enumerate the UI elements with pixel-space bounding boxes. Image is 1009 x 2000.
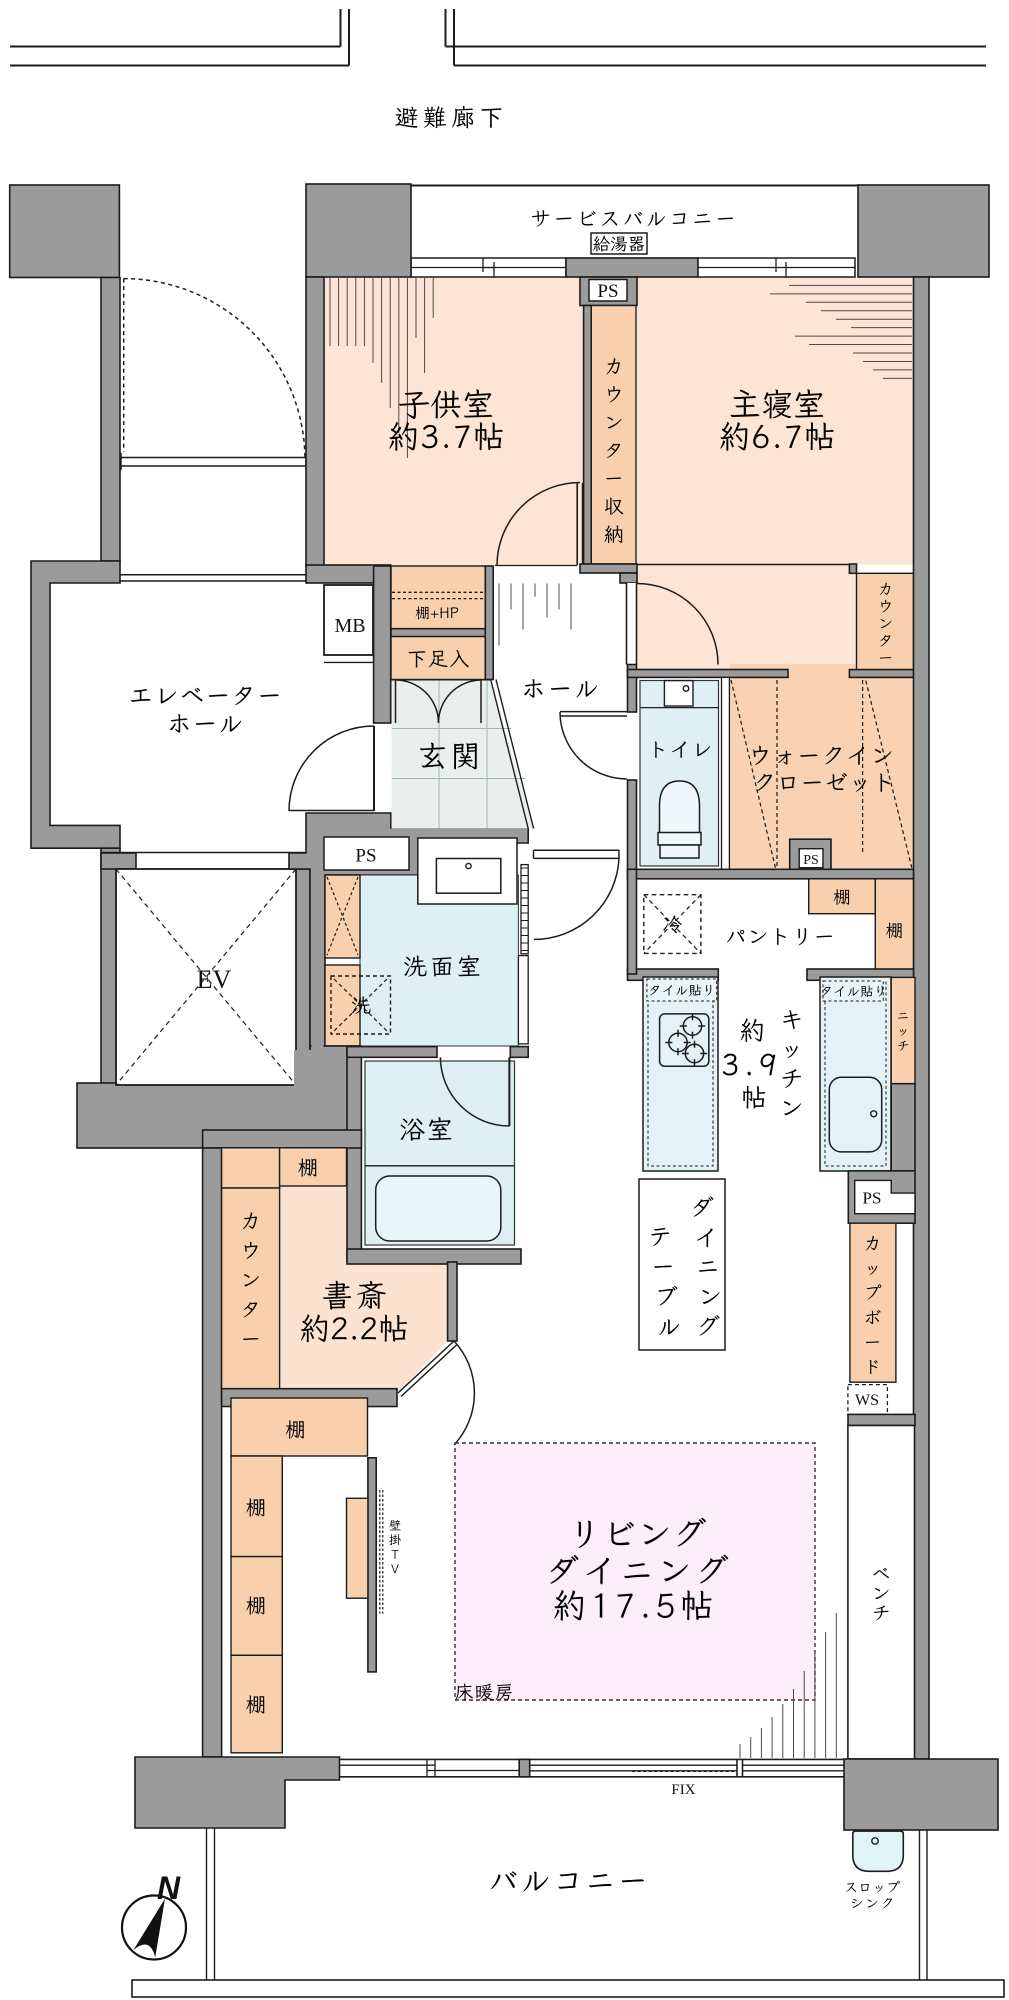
svg-text:PS: PS — [863, 1189, 882, 1208]
svg-text:N: N — [157, 1870, 181, 1906]
svg-text:WS: WS — [855, 1392, 879, 1409]
svg-text:PS: PS — [355, 846, 376, 867]
svg-text:EV: EV — [197, 965, 232, 994]
svg-text:PS: PS — [803, 853, 819, 868]
svg-text:MB: MB — [334, 615, 365, 637]
svg-text:PS: PS — [597, 281, 618, 302]
svg-text:FIX: FIX — [671, 1782, 695, 1798]
